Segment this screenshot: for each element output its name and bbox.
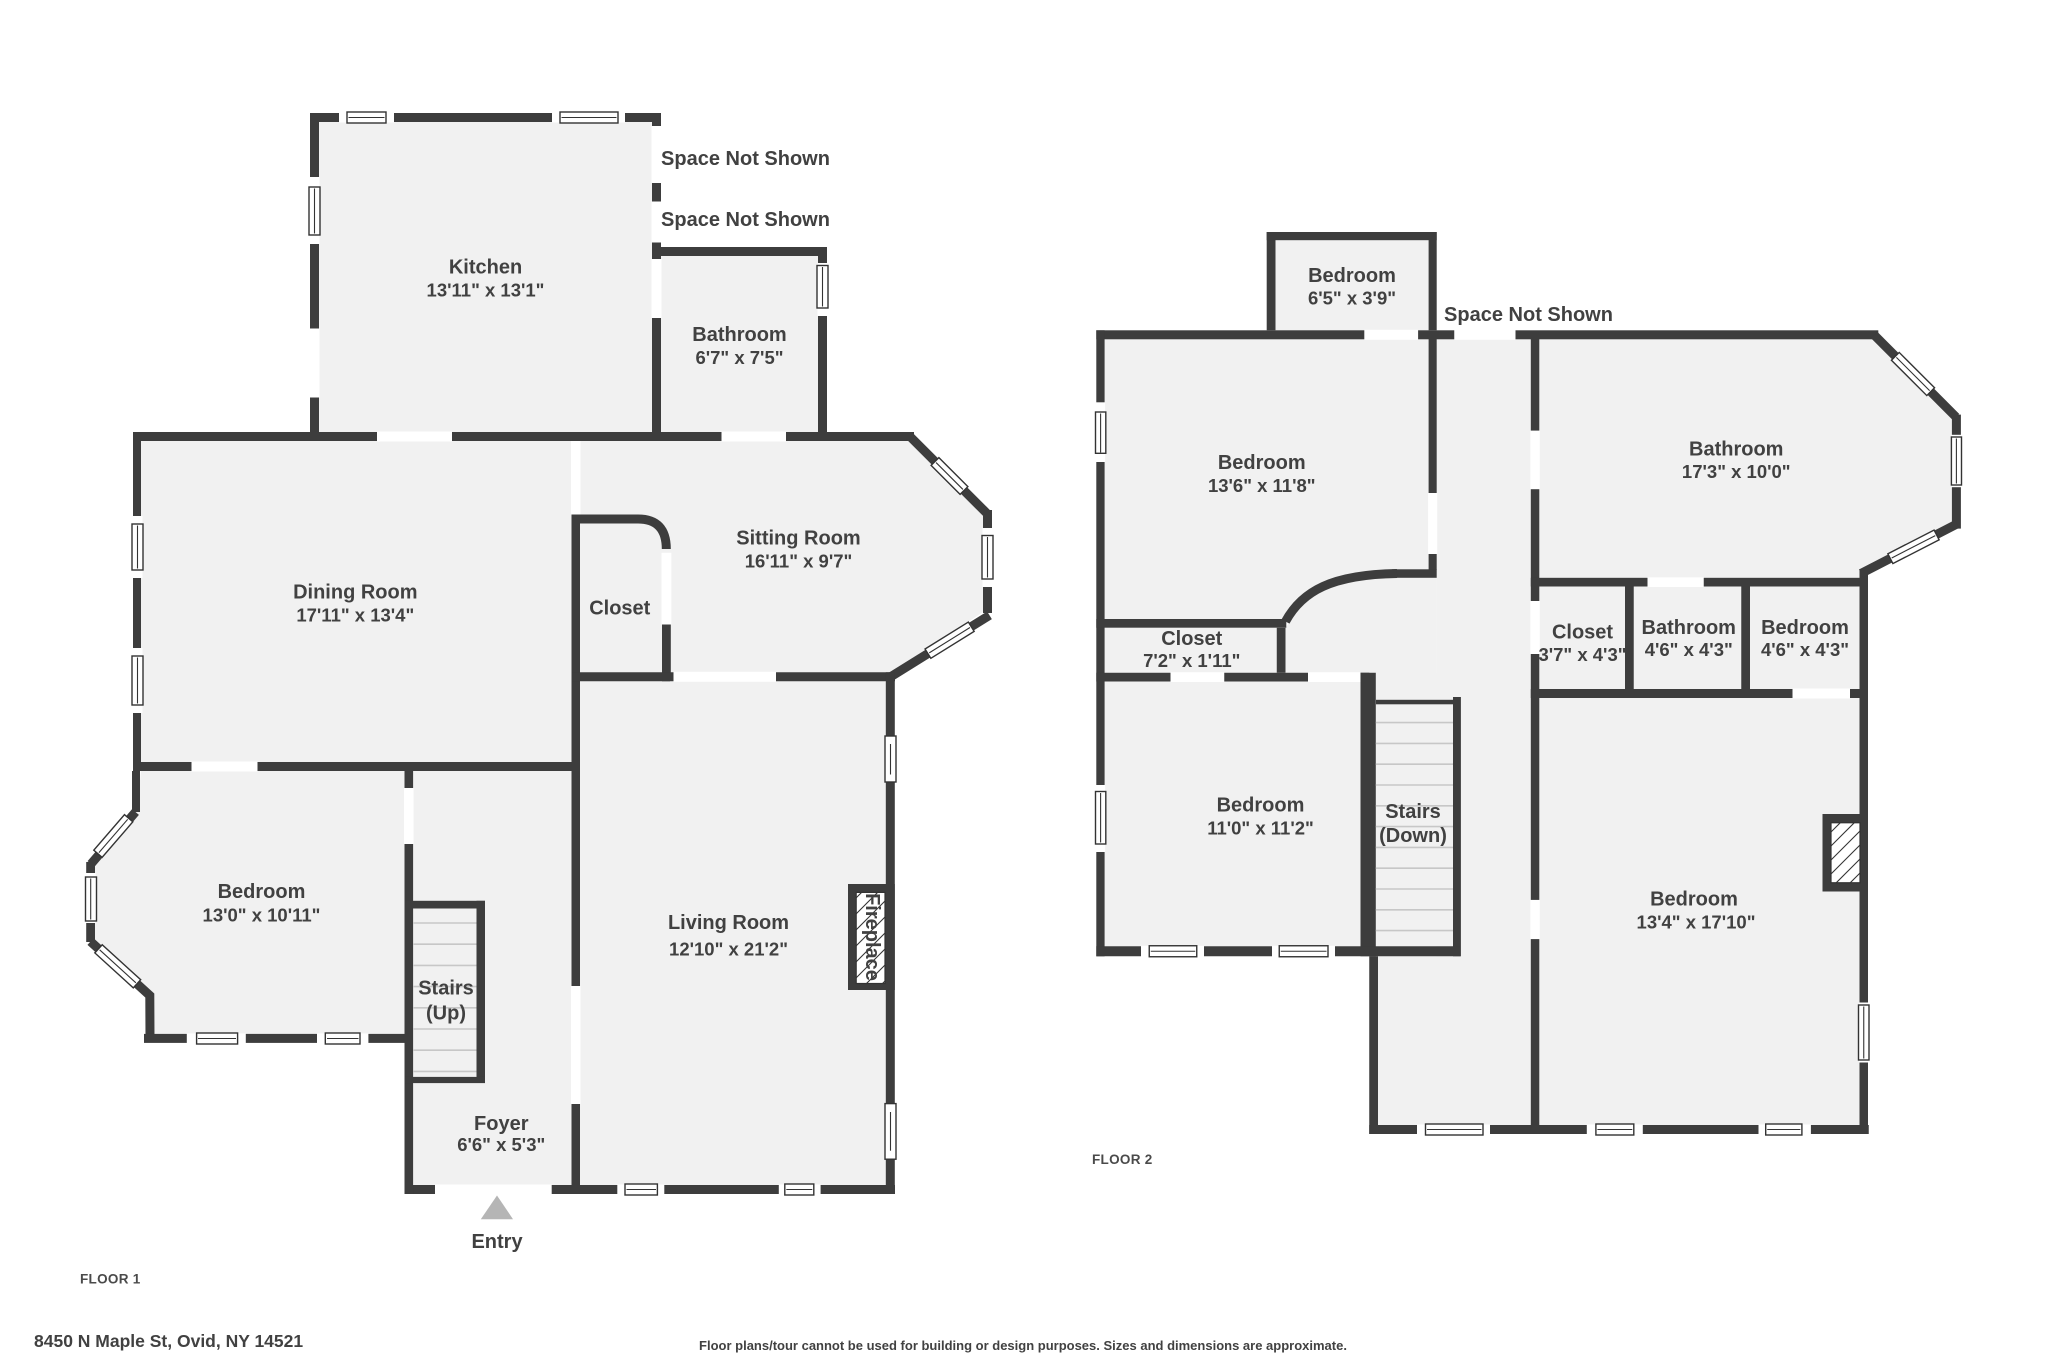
svg-text:Bedroom: Bedroom [1218,452,1306,474]
svg-text:13'6" x 11'8": 13'6" x 11'8" [1208,475,1316,496]
svg-text:Closet: Closet [1552,622,1613,644]
svg-text:(Down): (Down) [1379,825,1447,847]
svg-text:6'5" x 3'9": 6'5" x 3'9" [1308,288,1396,309]
svg-text:13'0" x 10'11": 13'0" x 10'11" [203,905,321,926]
svg-text:Stairs: Stairs [418,978,474,1000]
svg-text:Space Not Shown: Space Not Shown [661,209,830,231]
svg-text:13'4" x 17'10": 13'4" x 17'10" [1637,912,1756,933]
svg-text:Entry: Entry [471,1231,523,1253]
svg-text:FLOOR 1: FLOOR 1 [80,1272,141,1287]
svg-text:4'6" x 4'3": 4'6" x 4'3" [1645,639,1733,660]
svg-text:Living Room: Living Room [668,912,789,934]
svg-text:Fireplace: Fireplace [861,893,883,981]
svg-text:Bathroom: Bathroom [1689,439,1783,461]
svg-text:Space Not Shown: Space Not Shown [1444,304,1613,326]
svg-text:13'11" x 13'1": 13'11" x 13'1" [427,280,545,301]
svg-text:Closet: Closet [589,598,650,620]
svg-text:Bedroom: Bedroom [218,881,306,903]
svg-text:Stairs: Stairs [1385,801,1441,823]
svg-text:Space Not Shown: Space Not Shown [661,148,830,170]
svg-text:(Up): (Up) [426,1003,466,1025]
svg-text:Foyer: Foyer [474,1113,529,1135]
svg-text:6'7" x 7'5": 6'7" x 7'5" [695,347,783,368]
svg-text:6'6" x 5'3": 6'6" x 5'3" [457,1134,545,1155]
svg-text:4'6" x 4'3": 4'6" x 4'3" [1761,639,1849,660]
svg-text:17'3" x 10'0": 17'3" x 10'0" [1682,461,1791,482]
svg-text:Bedroom: Bedroom [1761,617,1849,639]
svg-text:Closet: Closet [1161,628,1222,650]
svg-text:8450 N Maple St, Ovid, NY 1452: 8450 N Maple St, Ovid, NY 14521 [34,1331,303,1351]
svg-text:17'11" x 13'4": 17'11" x 13'4" [296,605,414,626]
svg-text:Bedroom: Bedroom [1308,265,1396,287]
svg-text:Floor plans/tour cannot be use: Floor plans/tour cannot be used for buil… [699,1338,1347,1353]
svg-text:Sitting Room: Sitting Room [736,528,860,550]
svg-text:12'10" x 21'2": 12'10" x 21'2" [669,939,788,960]
svg-text:Bathroom: Bathroom [1642,617,1736,639]
svg-text:Kitchen: Kitchen [449,257,522,279]
svg-text:Bathroom: Bathroom [692,324,786,346]
svg-text:3'7" x 4'3": 3'7" x 4'3" [1538,644,1626,665]
svg-text:11'0" x 11'2": 11'0" x 11'2" [1207,818,1314,839]
svg-text:Dining Room: Dining Room [293,582,417,604]
svg-text:FLOOR 2: FLOOR 2 [1092,1152,1153,1167]
svg-text:7'2" x 1'11": 7'2" x 1'11" [1143,650,1240,671]
svg-text:Bedroom: Bedroom [1217,795,1305,817]
svg-text:Bedroom: Bedroom [1650,889,1738,911]
svg-text:16'11" x 9'7": 16'11" x 9'7" [745,551,853,572]
